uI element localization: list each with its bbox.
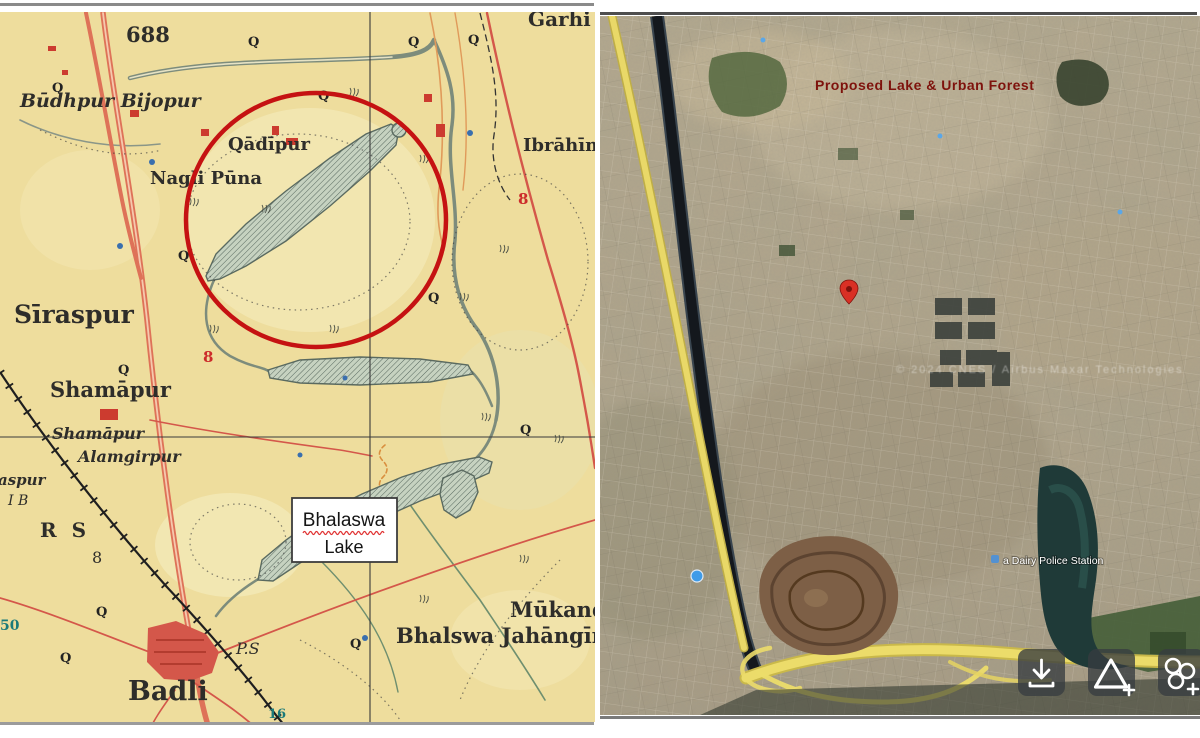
label-badli: Badli xyxy=(128,676,208,707)
left-map-bottom-rule xyxy=(0,722,594,725)
well-icon: Q xyxy=(468,33,479,48)
label-bhalswa-jahangir: Bhalswa Jahāngīrp xyxy=(396,623,595,648)
download-button[interactable] xyxy=(1018,649,1065,696)
historical-map-panel[interactable]: Q Q Q Q Q Q Q Q Q Q Q Q 688 Garhi Būdhpu… xyxy=(0,12,595,722)
label-ibrahim: Ibrāhīm xyxy=(523,135,595,156)
earth-toolbar xyxy=(1018,649,1200,696)
label-garhi: Garhi xyxy=(528,12,591,31)
label-shamapur-small: Shamāpur xyxy=(52,424,146,443)
poi-icon xyxy=(991,555,999,563)
label-ib: I B xyxy=(7,493,28,509)
label-rs: R S xyxy=(40,518,90,542)
transit-marker-icon xyxy=(691,570,703,582)
imagery-watermark: © 2024 CNES / Airbus Maxar Technologies xyxy=(896,364,1184,376)
label-red-8b: 8 xyxy=(518,190,528,208)
label-qadipur: Qādīpur xyxy=(228,134,310,155)
add-area-button[interactable] xyxy=(1088,649,1135,696)
label-budhpur-bijopur: Būdhpur Bijopur xyxy=(19,90,203,112)
figure-canvas: Q Q Q Q Q Q Q Q Q Q Q Q 688 Garhi Būdhpu… xyxy=(0,0,1200,738)
label-siraspur: Sīraspur xyxy=(14,300,135,329)
right-map-bottom-rule xyxy=(600,716,1200,719)
label-box-line1: Bhalaswa xyxy=(303,510,386,531)
svg-text:a Dairy Police Station: a Dairy Police Station xyxy=(1003,555,1104,567)
well-icon: Q xyxy=(118,363,129,378)
projects-button[interactable] xyxy=(1158,649,1200,696)
label-depth-50: 50 xyxy=(0,618,20,634)
label-depth-16: 16 xyxy=(268,707,286,722)
label-shamapur: Shamāpur xyxy=(50,377,172,402)
label-8: 8 xyxy=(92,548,102,567)
well-icon: Q xyxy=(520,423,531,438)
left-map-top-rule xyxy=(0,3,594,6)
label-box-line2: Lake xyxy=(324,537,363,557)
well-icon: Q xyxy=(428,291,439,306)
label-spot-height: 688 xyxy=(126,22,170,47)
label-ps: P.S xyxy=(235,639,260,658)
well-icon: Q xyxy=(248,35,259,50)
well-icon: Q xyxy=(60,651,71,666)
police-station-label: a Dairy Police Station xyxy=(991,555,1104,567)
label-red-8a: 8 xyxy=(203,348,213,366)
well-icon: Q xyxy=(350,637,361,652)
well-icon: Q xyxy=(408,35,419,50)
label-alamgirpur: Alamgirpur xyxy=(76,447,182,466)
landfill-mound xyxy=(759,536,898,655)
right-map-top-rule xyxy=(600,12,1197,15)
well-icon: Q xyxy=(178,249,189,264)
label-mukand: Mūkandp xyxy=(510,597,595,622)
well-icon: Q xyxy=(96,605,107,620)
overlay-title: Proposed Lake & Urban Forest xyxy=(815,77,1034,93)
satellite-map-panel[interactable]: Proposed Lake & Urban Forest © 2024 CNES… xyxy=(600,16,1200,715)
label-nagli-puna: Nagli Pūna xyxy=(150,168,262,189)
bhalaswa-lake-label-box: Bhalaswa Lake xyxy=(292,498,397,562)
label-aspur: aspur xyxy=(0,471,47,489)
